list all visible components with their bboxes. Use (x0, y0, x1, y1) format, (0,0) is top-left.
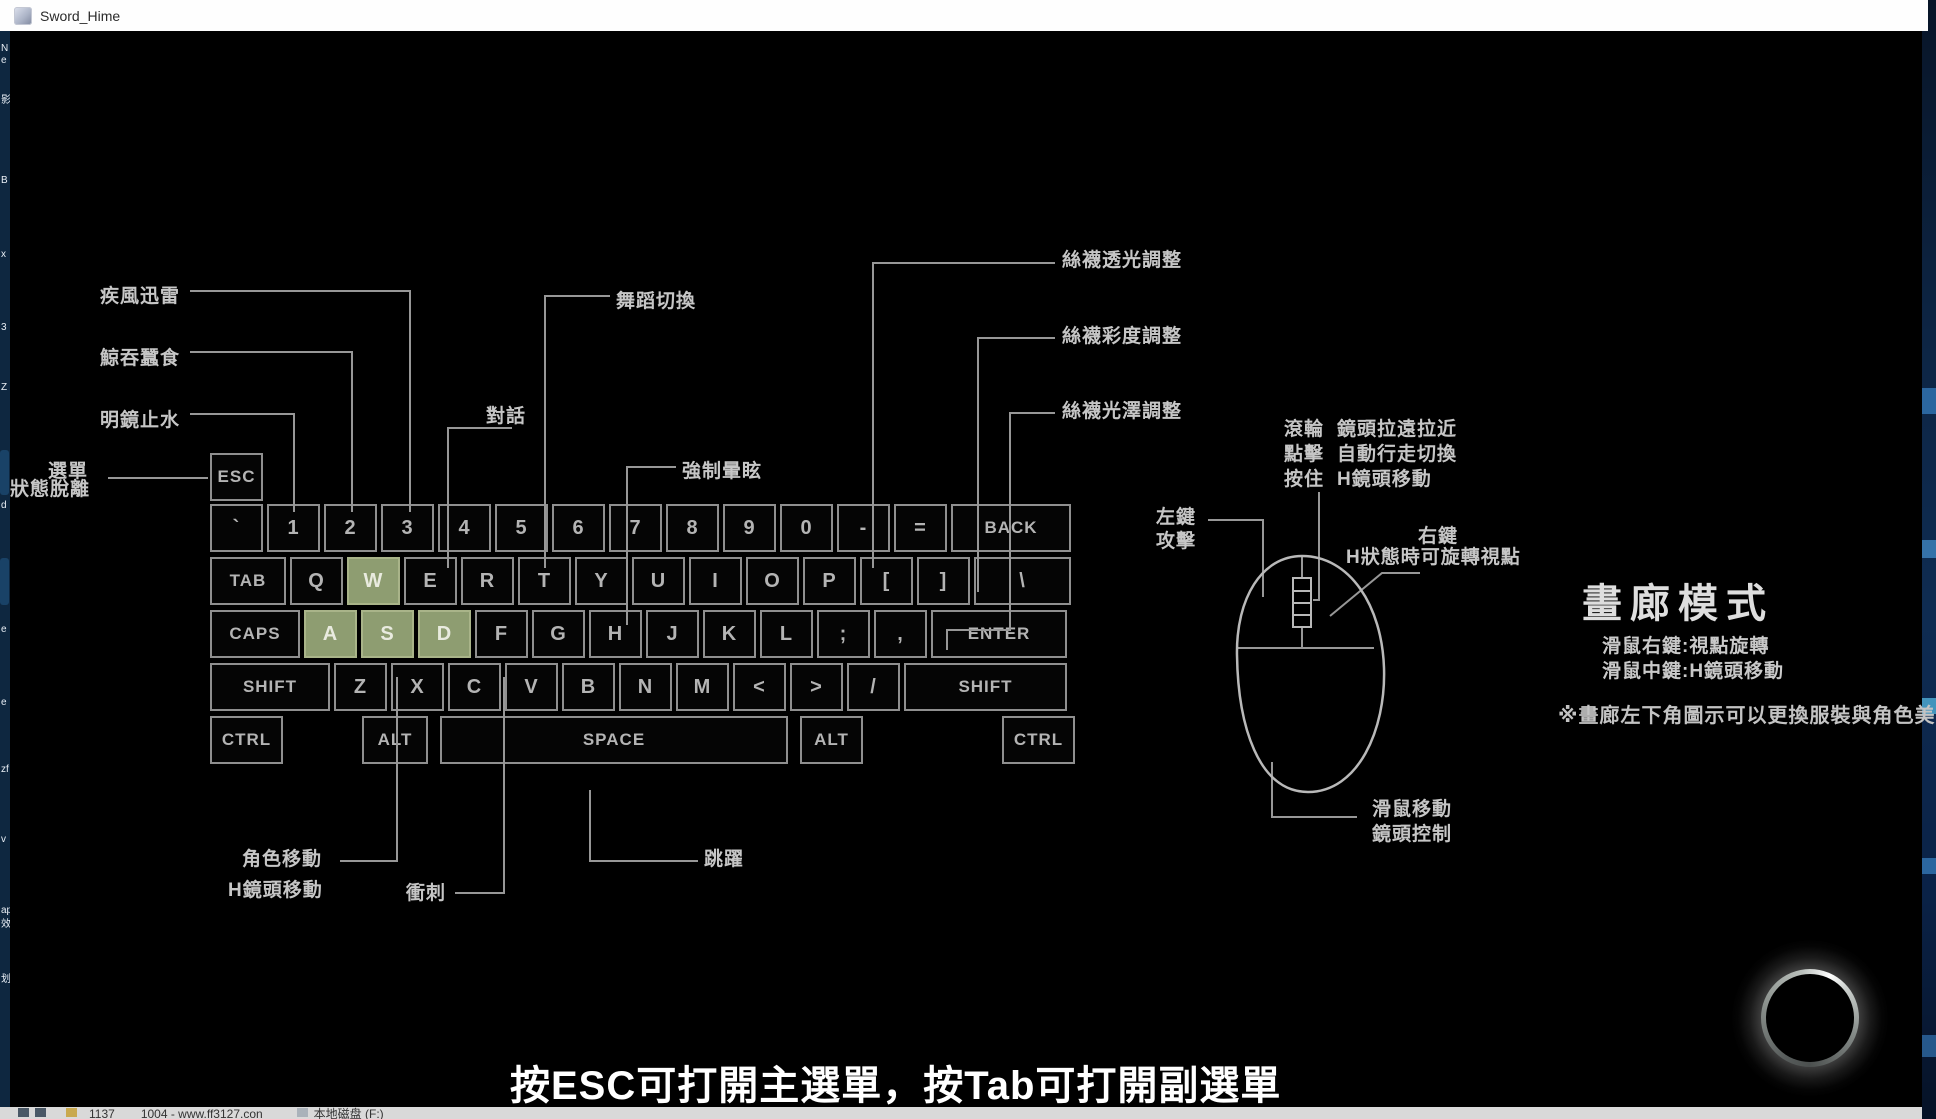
annotation-label: 絲襪光澤調整 (1062, 396, 1182, 423)
key-;: ; (817, 610, 870, 658)
drive-label[interactable]: 本地磁盘 (F:) (314, 1107, 384, 1119)
annotation-label: H鏡頭移動 (228, 875, 323, 902)
annotation-label: 鯨吞蠶食 (100, 343, 180, 370)
annotation-label: 絲襪透光調整 (1062, 245, 1182, 272)
gallery-hint-middle-click: 滑鼠中鍵:H鏡頭移動 (1602, 656, 1784, 683)
keyboard-row: CTRLALTSPACEALTCTRL (210, 716, 1075, 764)
key-caps: CAPS (210, 610, 300, 658)
annotation-label: 強制暈眩 (682, 456, 762, 483)
annotation-label: 滾輪 (1284, 414, 1324, 441)
key-s: S (361, 610, 414, 658)
desktop-text-fragment: v (1, 835, 6, 845)
taskbar-icon (18, 1108, 29, 1117)
keyboard-spacer (287, 716, 358, 764)
gallery-mode-title: 畫廊模式 (1582, 571, 1774, 629)
annotation-label: 點擊 (1284, 439, 1324, 466)
game-viewport: ESC`1234567890-=BACKTABQWERTYUIOP[]\CAPS… (10, 31, 1922, 1106)
key-/: / (847, 663, 900, 711)
key-3: 3 (381, 504, 434, 552)
annotation-label: 明鏡止水 (100, 405, 180, 432)
key--: - (837, 504, 890, 552)
key-e: E (404, 557, 457, 605)
key-=: = (894, 504, 947, 552)
key-]: ] (917, 557, 970, 605)
key-r: R (461, 557, 514, 605)
key-esc: ESC (210, 453, 263, 501)
key-x: X (391, 663, 444, 711)
key-t: T (518, 557, 571, 605)
key-m: M (676, 663, 729, 711)
key-\: \ (974, 557, 1071, 605)
annotation-label: 衝刺 (406, 878, 446, 905)
desktop-text-fragment: e (1, 625, 7, 635)
desktop-edge-left: Ne影Bx3Zdeezfvap效划 (0, 31, 10, 1119)
loading-spinner (1732, 940, 1888, 1096)
spinner-ring (1761, 969, 1859, 1067)
annotation-label: 鏡頭拉遠拉近 (1337, 414, 1457, 441)
key-[: [ (860, 557, 913, 605)
key-ctrl: CTRL (1002, 716, 1075, 764)
key-`: ` (210, 504, 263, 552)
key-z: Z (334, 663, 387, 711)
key-2: 2 (324, 504, 377, 552)
annotation-label: 攻擊 (1156, 526, 1196, 553)
desktop-icon-fragment (0, 558, 9, 605)
annotation-label: 角色移動 (242, 844, 322, 871)
key-alt: ALT (800, 716, 863, 764)
key-f: F (475, 610, 528, 658)
app-icon (14, 7, 32, 25)
window-title: Sword_Hime (40, 8, 120, 24)
key-p: P (803, 557, 856, 605)
key-g: G (532, 610, 585, 658)
bottom-instruction-text: 按ESC可打開主選單，按Tab可打開副選單 (510, 1053, 1281, 1111)
key-h: H (589, 610, 642, 658)
desktop-text-fragment: B (1, 176, 8, 186)
annotation-label: 舞蹈切換 (616, 286, 696, 313)
key-7: 7 (609, 504, 662, 552)
desktop-text-fragment: Z (1, 383, 7, 393)
desktop-text-fragment: zf (1, 765, 9, 775)
key-j: J (646, 610, 699, 658)
desktop-text-fragment: x (1, 250, 6, 260)
wallpaper-segment (1922, 388, 1936, 414)
annotation-label: 左鍵 (1156, 502, 1196, 529)
key-<: < (733, 663, 786, 711)
keyboard-spacer (792, 716, 796, 764)
desktop-text-fragment: N (1, 44, 8, 54)
key-6: 6 (552, 504, 605, 552)
screen: { "window": { "title": "Sword_Hime", "cl… (0, 0, 1936, 1119)
desktop-text-fragment: e (1, 698, 7, 708)
key-c: C (448, 663, 501, 711)
key-shift: SHIFT (904, 663, 1067, 711)
key-d: D (418, 610, 471, 658)
key-y: Y (575, 557, 628, 605)
key-0: 0 (780, 504, 833, 552)
keyboard-spacer (867, 716, 998, 764)
gallery-note: ※畫廊左下角圖示可以更換服裝與角色美體 (1558, 699, 1936, 728)
annotation-label: 鏡頭控制 (1372, 819, 1452, 846)
key-alt: ALT (362, 716, 428, 764)
folder-icon (66, 1108, 77, 1117)
annotation-label: H狀態時可旋轉視點 (1346, 542, 1521, 569)
key-w: W (347, 557, 400, 605)
key-ctrl: CTRL (210, 716, 283, 764)
browser-tab-title[interactable]: 1004 - www.ff3127.con (141, 1107, 263, 1119)
wallpaper-segment (1922, 540, 1936, 558)
key-v: V (505, 663, 558, 711)
gallery-hint-right-click: 滑鼠右鍵:視點旋轉 (1602, 631, 1769, 658)
taskbar-icon (35, 1108, 46, 1117)
browser-link-text[interactable]: 1137 (89, 1107, 115, 1119)
key-9: 9 (723, 504, 776, 552)
key-u: U (632, 557, 685, 605)
drive-icon (297, 1108, 308, 1117)
annotation-label: H鏡頭移動 (1337, 464, 1432, 491)
desktop-text-fragment: e (1, 56, 7, 66)
key-o: O (746, 557, 799, 605)
key-i: I (689, 557, 742, 605)
key-1: 1 (267, 504, 320, 552)
keyboard-row: SHIFTZXCVBNM<>/SHIFT (210, 663, 1075, 711)
key-enter: ENTER (931, 610, 1067, 658)
desktop-icon-fragment (0, 450, 9, 495)
key-5: 5 (495, 504, 548, 552)
desktop-edge-right (1922, 0, 1936, 1119)
desktop-text-fragment: 3 (1, 323, 7, 333)
keyboard-row: `1234567890-=BACK (210, 504, 1075, 552)
wallpaper-segment (1922, 858, 1936, 874)
key-n: N (619, 663, 672, 711)
keyboard-row: ESC (210, 453, 1075, 501)
key-l: L (760, 610, 813, 658)
annotation-label: 絲襪彩度調整 (1062, 321, 1182, 348)
keyboard-row: TABQWERTYUIOP[]\ (210, 557, 1075, 605)
annotation-label: 狀態脫離 (10, 474, 90, 501)
annotation-label: 自動行走切換 (1337, 439, 1457, 466)
key-q: Q (290, 557, 343, 605)
key-k: K (703, 610, 756, 658)
key-b: B (562, 663, 615, 711)
key-4: 4 (438, 504, 491, 552)
key-a: A (304, 610, 357, 658)
keyboard-row: CAPSASDFGHJKL;,ENTER (210, 610, 1075, 658)
annotation-label: 滑鼠移動 (1372, 794, 1452, 821)
annotation-label: 疾風迅雷 (100, 281, 180, 308)
key-space: SPACE (440, 716, 788, 764)
key-back: BACK (951, 504, 1071, 552)
key-tab: TAB (210, 557, 286, 605)
annotation-label: 跳躍 (704, 844, 744, 871)
keyboard-diagram: ESC`1234567890-=BACKTABQWERTYUIOP[]\CAPS… (210, 453, 1075, 769)
key-8: 8 (666, 504, 719, 552)
key-shift: SHIFT (210, 663, 330, 711)
wallpaper-segment (1922, 1035, 1936, 1057)
key->: > (790, 663, 843, 711)
annotation-label: 對話 (486, 401, 526, 428)
background-window-sliver: 1137 1004 - www.ff3127.con 本地磁盘 (F:) (0, 1107, 1922, 1119)
keyboard-spacer (432, 716, 436, 764)
desktop-text-fragment: d (1, 501, 7, 511)
window-titlebar: Sword_Hime (0, 0, 1928, 31)
annotation-label: 按住 (1284, 464, 1324, 491)
key-,: , (874, 610, 927, 658)
